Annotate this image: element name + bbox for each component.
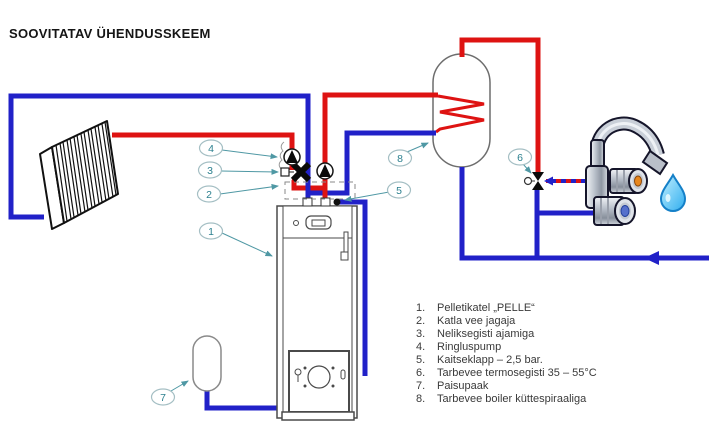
callout-4-number: 4 (208, 143, 214, 155)
callout-8-number: 8 (397, 153, 403, 165)
pipe-expansion-tank (207, 387, 280, 408)
callout-1-number: 1 (208, 226, 214, 238)
callout-3: 3 (199, 162, 222, 178)
callout-6: 6 (509, 149, 532, 165)
legend-item-text: Ringluspump (437, 341, 501, 354)
circulation-pump-icon-2 (317, 163, 333, 179)
callout-2: 2 (198, 186, 221, 202)
faucet-spout-tip (643, 151, 667, 174)
safety-valve-icon (334, 199, 341, 206)
water-drop-icon (661, 175, 685, 211)
callout-3-number: 3 (207, 165, 213, 177)
pipe-boiler-to-tank (325, 95, 438, 188)
legend-item: 1. Pelletikatel „PELLE“ (416, 302, 597, 315)
callout-6-number: 6 (517, 152, 523, 164)
legend-item-number: 2. (416, 315, 437, 328)
legend-item-text: Pelletikatel „PELLE“ (437, 302, 535, 315)
legend-item-text: Tarbevee termosegisti 35 – 55°C (437, 367, 597, 380)
callout-5: 5 (388, 182, 411, 198)
callout-4: 4 (200, 140, 223, 156)
legend-item-text: Katla vee jagaja (437, 315, 515, 328)
legend-item: 4. Ringluspump (416, 341, 597, 354)
callout-7: 7 (152, 389, 175, 405)
circulation-pump-icon (284, 149, 300, 165)
cold-flow-arrow-icon (644, 251, 659, 265)
valve-actuator (281, 168, 289, 176)
callout-1: 1 (200, 223, 223, 239)
faucet (586, 124, 667, 225)
radiator (40, 121, 118, 229)
legend-item-text: Kaitseklapp – 2,5 bar. (437, 354, 543, 367)
callout-2-number: 2 (206, 189, 212, 201)
legend-item-number: 5. (416, 354, 437, 367)
legend-item-number: 1. (416, 302, 437, 315)
legend-item: 5. Kaitseklapp – 2,5 bar. (416, 354, 597, 367)
legend-item-text: Paisupaak (437, 380, 488, 393)
legend-item: 7. Paisupaak (416, 380, 597, 393)
diagram-svg: 1 2 3 4 5 6 7 (0, 0, 709, 443)
legend-item: 6. Tarbevee termosegisti 35 – 55°C (416, 367, 597, 380)
callout-8: 8 (389, 150, 412, 166)
mixed-flow-arrow-icon (544, 177, 553, 186)
faucet-hot-knob (610, 169, 647, 193)
valve-actuator-cable (279, 142, 284, 169)
thermostatic-mixer-icon (525, 172, 545, 190)
legend-item: 3. Neliksegisti ajamiga (416, 328, 597, 341)
legend-item-number: 6. (416, 367, 437, 380)
callout-7-number: 7 (160, 392, 166, 404)
legend-item-number: 7. (416, 380, 437, 393)
legend-item-number: 3. (416, 328, 437, 341)
legend-item: 2. Katla vee jagaja (416, 315, 597, 328)
faucet-cold-knob (594, 197, 635, 225)
legend: 1. Pelletikatel „PELLE“ 2. Katla vee jag… (416, 302, 597, 406)
pellet-boiler (277, 198, 357, 420)
legend-item-text: Neliksegisti ajamiga (437, 328, 534, 341)
callout-5-number: 5 (396, 185, 402, 197)
legend-item-number: 8. (416, 393, 437, 406)
legend-item: 8. Tarbevee boiler küttespiraaliga (416, 393, 597, 406)
expansion-tank (193, 336, 221, 391)
legend-item-text: Tarbevee boiler küttespiraaliga (437, 393, 586, 406)
boiler-port (308, 366, 330, 388)
boiler-indicator (294, 221, 299, 226)
diagram-canvas: SOOVITATAV ÜHENDUSSKEEM (0, 0, 709, 443)
legend-item-number: 4. (416, 341, 437, 354)
